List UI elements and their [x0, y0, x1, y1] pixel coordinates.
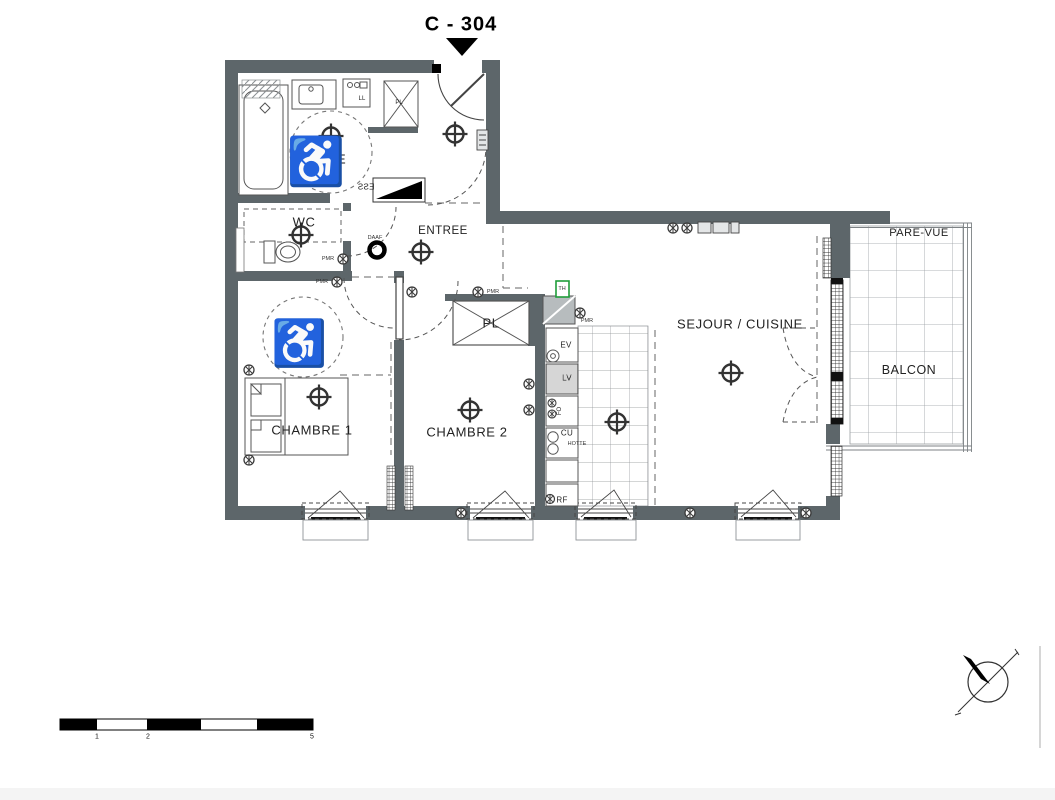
label-oven: FO	[557, 407, 563, 415]
room-label-sejour-cuisine: SEJOUR / CUISINE	[677, 317, 803, 332]
label-closet-sde: PL	[395, 100, 402, 106]
scale-bar	[60, 719, 313, 730]
washbasin	[292, 80, 336, 109]
label-sink: EV	[560, 341, 571, 350]
label-pmr-1: PMR	[322, 256, 334, 262]
label-pmr-2: PMR	[316, 279, 328, 285]
smoke-detector	[370, 243, 385, 258]
scale-label-1: 1	[95, 734, 99, 741]
label-fridge: RF	[556, 496, 567, 505]
wheelchair-icon: ♿	[287, 138, 346, 185]
label-pmr-3: PMR	[487, 289, 499, 295]
outlets	[244, 223, 811, 518]
label-pare-vue: PARE-VUE	[889, 227, 948, 239]
label-smoke-detector: DAAF	[368, 235, 383, 241]
label-duct-ess: ESS	[358, 183, 375, 192]
unit-title: C - 304	[425, 14, 498, 37]
bed	[245, 378, 348, 455]
toilet	[264, 241, 300, 263]
sheet-bottom-strip	[0, 788, 1055, 800]
entry-door	[432, 64, 484, 120]
floor-plan-sheet: C - 304 SDE WC ENTREE CHAMBRE 1 CHAMBRE …	[0, 0, 1055, 800]
room-label-chambre1: CHAMBRE 1	[271, 423, 352, 438]
ess-duct	[373, 178, 425, 202]
label-closet-hall: PL	[482, 316, 499, 331]
label-cooktop: CU	[561, 429, 573, 438]
room-label-balcon: BALCON	[882, 363, 936, 377]
floor-plan-drawing	[0, 0, 1055, 800]
label-hood: HOTTE	[568, 441, 587, 447]
kitchen-duct	[543, 296, 575, 324]
room-label-entree: ENTREE	[418, 225, 468, 237]
ceiling-lights	[289, 122, 744, 435]
wheelchair-icon: ♿	[271, 321, 327, 366]
label-dishwasher: LV	[562, 374, 572, 383]
balcony-tile-floor	[850, 226, 963, 444]
bathtub	[239, 85, 288, 195]
label-washing-machine: LL	[359, 96, 366, 102]
north-compass	[955, 649, 1019, 715]
label-pmr-4: PMR	[581, 318, 593, 324]
kitchen-tile-floor	[578, 326, 648, 506]
washing-machine	[343, 79, 370, 107]
unit-marker-triangle	[446, 38, 478, 56]
chambre2-door-leaf	[396, 277, 403, 339]
room-label-chambre2: CHAMBRE 2	[426, 425, 507, 440]
dashed-guides	[244, 203, 817, 506]
room-label-wc: WC	[293, 215, 316, 230]
scale-label-2: 2	[146, 734, 150, 741]
scale-label-5: 5	[310, 734, 314, 741]
wc-shelf	[236, 228, 244, 272]
label-thermostat: TH	[558, 286, 565, 292]
shelf-hatch	[242, 80, 280, 98]
